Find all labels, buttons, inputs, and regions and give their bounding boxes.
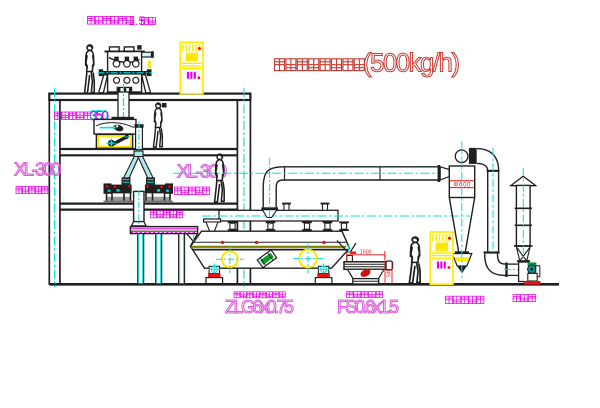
svg-text:XL-300: XL-300 [14,159,61,180]
svg-text:ZLG6x0.75: ZLG6x0.75 [225,297,294,317]
svg-text:(500kg/h): (500kg/h) [363,50,460,78]
svg-text:545: 545 [387,268,393,277]
svg-text:Φ600: Φ600 [454,183,472,189]
svg-text:FS0.6x1.5: FS0.6x1.5 [337,297,399,317]
svg-text:1500: 1500 [360,250,372,256]
